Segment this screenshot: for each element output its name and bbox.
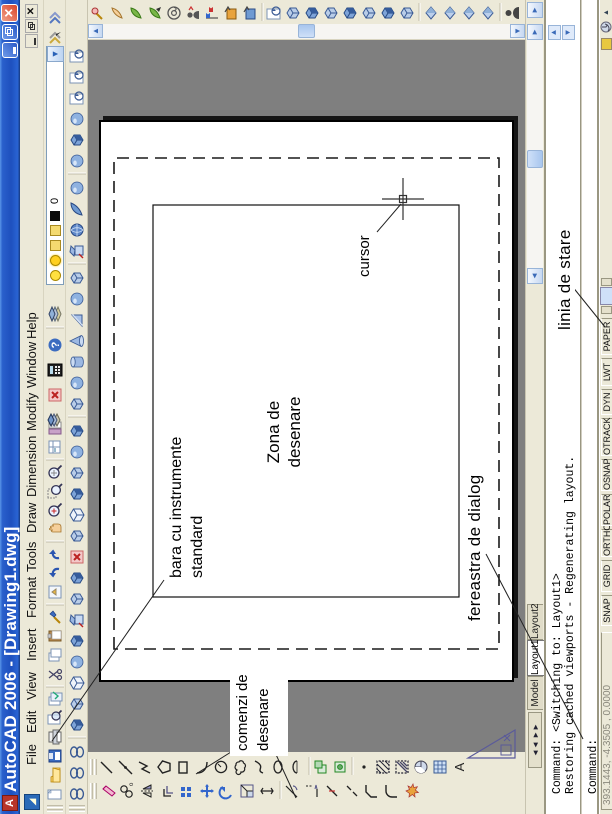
svg-text:o: o	[129, 782, 135, 786]
svg-text:?: ?	[50, 341, 62, 348]
svg-text:A: A	[452, 762, 467, 771]
